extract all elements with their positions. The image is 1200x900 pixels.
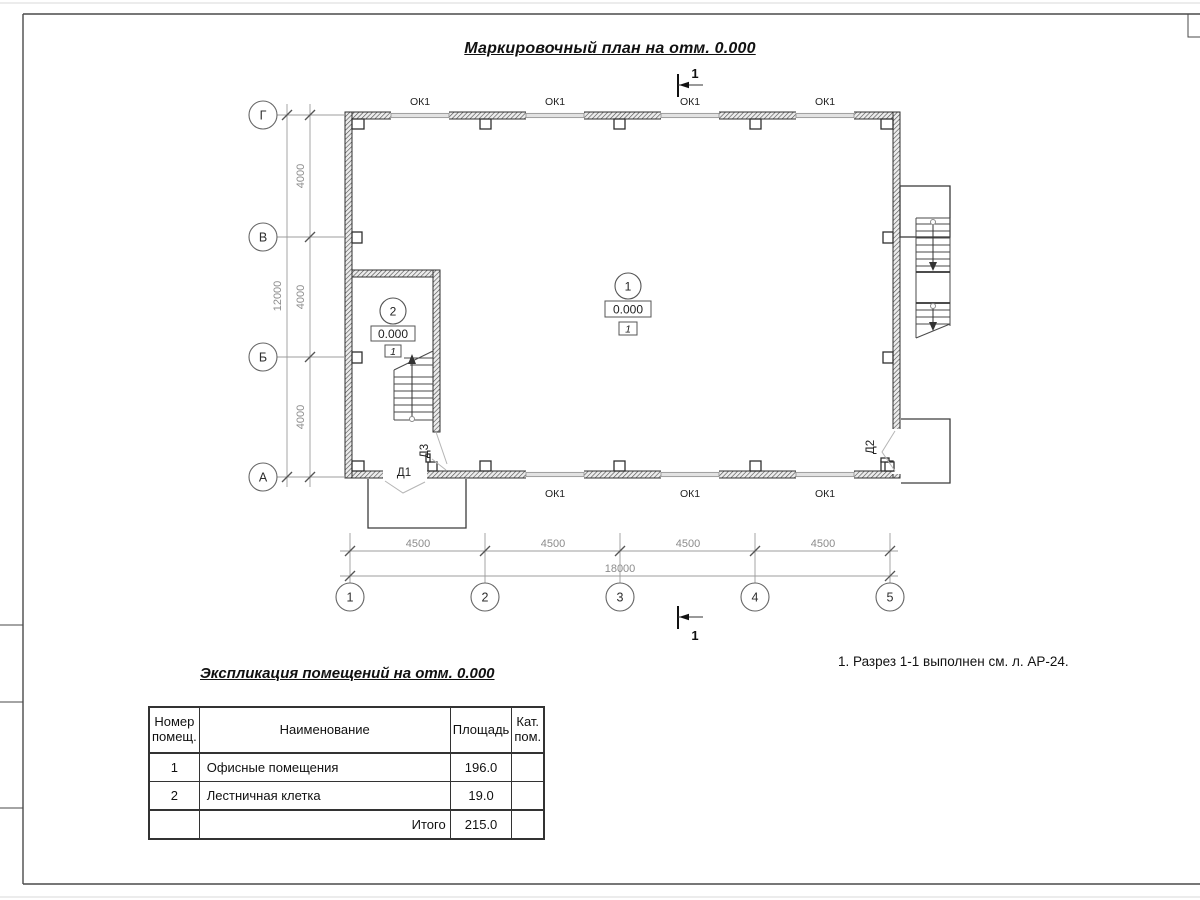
- table-header-row: Номер помещ. Наименование Площадь Кат. п…: [149, 707, 544, 753]
- cell-room-name: Офисные помещения: [199, 753, 450, 782]
- header-room-number: Номер помещ.: [149, 707, 199, 753]
- dim-4000-3: 4000: [295, 405, 307, 429]
- room2-floor-type: 1: [390, 346, 396, 358]
- cell-room-name: Лестничная клетка: [199, 782, 450, 811]
- axis-col-2: 2: [482, 591, 489, 605]
- axis-col-3: 3: [617, 591, 624, 605]
- axes-left: Г В Б А 4000 4000 4000 12000: [249, 101, 345, 491]
- dim-4000-1: 4000: [295, 164, 307, 188]
- room1-floor-type: 1: [625, 324, 631, 336]
- axis-row-a: А: [259, 471, 268, 485]
- table-row: 2 Лестничная клетка 19.0: [149, 782, 544, 811]
- window-mark: ОК1: [545, 96, 565, 108]
- room2-number: 2: [390, 305, 397, 319]
- total-label: Итого: [199, 810, 450, 839]
- dim-12000: 12000: [272, 281, 284, 312]
- door-leaves: [385, 431, 895, 493]
- window-mark: ОК1: [815, 488, 835, 500]
- explication-table: Номер помещ. Наименование Площадь Кат. п…: [148, 706, 545, 840]
- explication-title: Экспликация помещений на отм. 0.000: [200, 665, 495, 682]
- window-mark: ОК1: [680, 96, 700, 108]
- door-mark-d1: Д1: [397, 467, 411, 479]
- room2-marker: 2 0.000 1: [371, 298, 415, 358]
- page-title: Маркировочный план на отм. 0.000: [400, 40, 820, 58]
- cell-empty: [512, 810, 544, 839]
- axis-col-1: 1: [347, 591, 354, 605]
- cell-room-area: 19.0: [450, 782, 512, 811]
- section-mark-top: 1: [678, 66, 703, 97]
- window-openings-bottom: [526, 470, 854, 479]
- door-mark-d3: Д3: [419, 444, 431, 458]
- dim-4500-3: 4500: [676, 538, 700, 550]
- dim-18000: 18000: [605, 563, 636, 575]
- cell-empty: [149, 810, 199, 839]
- total-area: 215.0: [450, 810, 512, 839]
- drawing-sheet: ОК1 ОК1 ОК1 ОК1 ОК1 ОК1 ОК1 Д1 Д2 Д3 1 0…: [0, 0, 1200, 900]
- window-mark: ОК1: [545, 488, 565, 500]
- section-label-top: 1: [691, 66, 698, 81]
- axis-row-b: Б: [259, 351, 267, 365]
- note-text: 1. Разрез 1-1 выполнен см. л. АР-24.: [838, 654, 1069, 669]
- axis-row-g: Г: [260, 109, 267, 123]
- cell-room-area: 196.0: [450, 753, 512, 782]
- door-mark-d2: Д2: [865, 440, 877, 454]
- header-category: Кат. пом.: [512, 707, 544, 753]
- cell-room-number: 1: [149, 753, 199, 782]
- axis-col-4: 4: [752, 591, 759, 605]
- window-mark: ОК1: [815, 96, 835, 108]
- section-label-bottom: 1: [691, 628, 698, 643]
- room1-number: 1: [625, 280, 632, 294]
- dim-4500-2: 4500: [541, 538, 565, 550]
- section-mark-bottom: 1: [678, 606, 703, 643]
- stair-room2: [394, 351, 433, 422]
- room2-elevation: 0.000: [378, 327, 408, 341]
- room1-elevation: 0.000: [613, 303, 643, 317]
- dim-4000-2: 4000: [295, 285, 307, 309]
- dim-4500-1: 4500: [406, 538, 430, 550]
- cell-room-number: 2: [149, 782, 199, 811]
- window-mark: ОК1: [410, 96, 430, 108]
- header-name: Наименование: [199, 707, 450, 753]
- cell-room-category: [512, 753, 544, 782]
- dim-4500-4: 4500: [811, 538, 835, 550]
- table-total-row: Итого 215.0: [149, 810, 544, 839]
- axis-row-v: В: [259, 231, 267, 245]
- axes-bottom: 1 2 3 4 5 4500 4500 4500 4500 18000: [336, 533, 904, 611]
- external-stair: [916, 218, 950, 338]
- table-row: 1 Офисные помещения 196.0: [149, 753, 544, 782]
- header-area: Площадь: [450, 707, 512, 753]
- cell-room-category: [512, 782, 544, 811]
- room1-marker: 1 0.000 1: [605, 273, 651, 336]
- window-mark: ОК1: [680, 488, 700, 500]
- axis-col-5: 5: [887, 591, 894, 605]
